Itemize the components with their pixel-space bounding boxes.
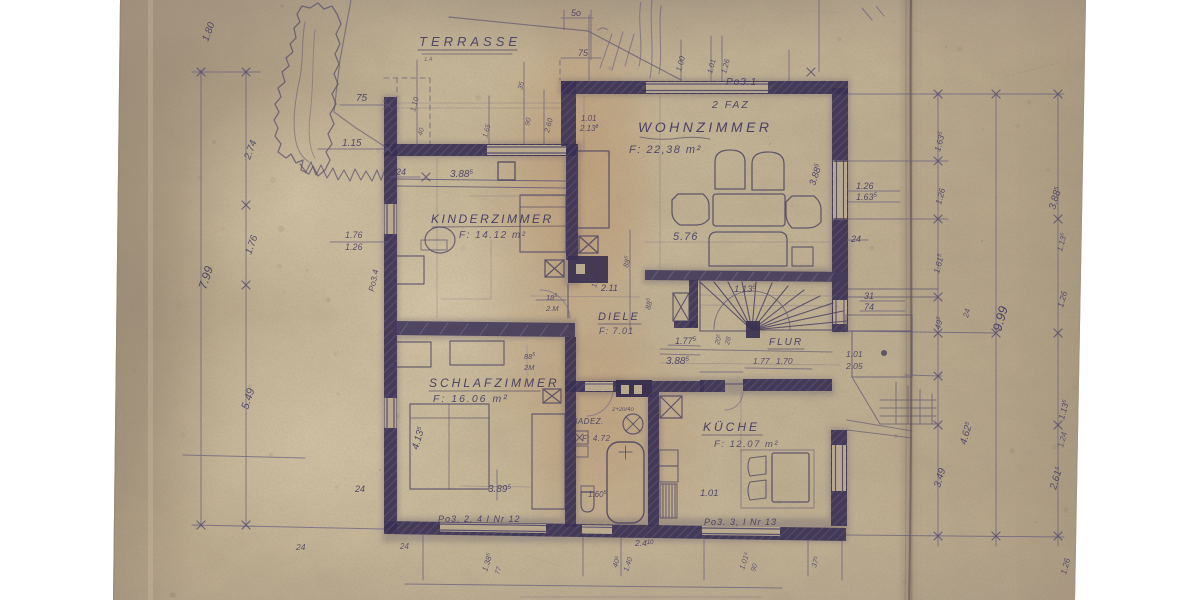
svg-text:1.70: 1.70 (776, 356, 793, 366)
svg-text:F: 16.06 m²: F: 16.06 m² (433, 393, 509, 405)
svg-text:F: 14.12 m²: F: 14.12 m² (459, 230, 527, 241)
svg-text:1.4: 1.4 (424, 57, 433, 63)
svg-text:2.M: 2.M (545, 304, 559, 313)
svg-text:1.15: 1.15 (342, 138, 362, 149)
svg-text:24: 24 (399, 542, 409, 551)
svg-text:KÜCHE: KÜCHE (703, 420, 760, 434)
svg-text:F: 4.72: F: 4.72 (582, 434, 610, 443)
svg-text:24: 24 (295, 542, 306, 552)
svg-text:SCHLAFZIMMER: SCHLAFZIMMER (429, 376, 560, 390)
svg-text:2.11: 2.11 (600, 283, 618, 293)
svg-text:24: 24 (850, 234, 861, 244)
svg-text:F: 22,38 m²: F: 22,38 m² (629, 144, 702, 156)
svg-text:1.26: 1.26 (856, 181, 874, 191)
svg-text:Po3. 2, 4 I Nr 12: Po3. 2, 4 I Nr 12 (438, 514, 521, 524)
svg-text:2 FAZ: 2 FAZ (711, 99, 750, 111)
svg-text:1.26: 1.26 (345, 242, 363, 252)
svg-text:5.76: 5.76 (673, 231, 698, 243)
svg-text:75: 75 (578, 48, 589, 58)
svg-text:75: 75 (356, 93, 368, 104)
svg-text:TERRASSE: TERRASSE (419, 34, 521, 49)
svg-text:2+2o/4o: 2+2o/4o (611, 407, 635, 413)
svg-text:Po3.1: Po3.1 (726, 77, 757, 88)
svg-text:1.01: 1.01 (846, 349, 863, 359)
svg-text:FLUR: FLUR (769, 337, 803, 348)
svg-text:F: 7.01: F: 7.01 (599, 326, 634, 336)
svg-text:BADEZ.: BADEZ. (572, 417, 604, 426)
svg-text:KINDERZIMMER: KINDERZIMMER (431, 212, 554, 226)
svg-text:F: 12.07 m²: F: 12.07 m² (714, 439, 779, 450)
svg-text:WOHNZIMMER: WOHNZIMMER (638, 119, 773, 135)
svg-text:31: 31 (864, 291, 874, 301)
svg-text:5o: 5o (571, 8, 581, 18)
svg-text:2.05: 2.05 (845, 361, 863, 371)
svg-text:74: 74 (864, 302, 874, 312)
svg-text:2M: 2M (523, 363, 535, 372)
svg-text:1.76: 1.76 (345, 230, 363, 240)
svg-text:1.01: 1.01 (581, 114, 597, 123)
svg-text:Po3. 3, I Nr 13: Po3. 3, I Nr 13 (704, 517, 777, 527)
svg-text:24: 24 (395, 167, 406, 177)
svg-text:24: 24 (354, 484, 365, 494)
svg-text:1.01: 1.01 (700, 488, 719, 499)
svg-text:1.77: 1.77 (753, 356, 770, 366)
svg-text:DIELE: DIELE (598, 311, 640, 323)
